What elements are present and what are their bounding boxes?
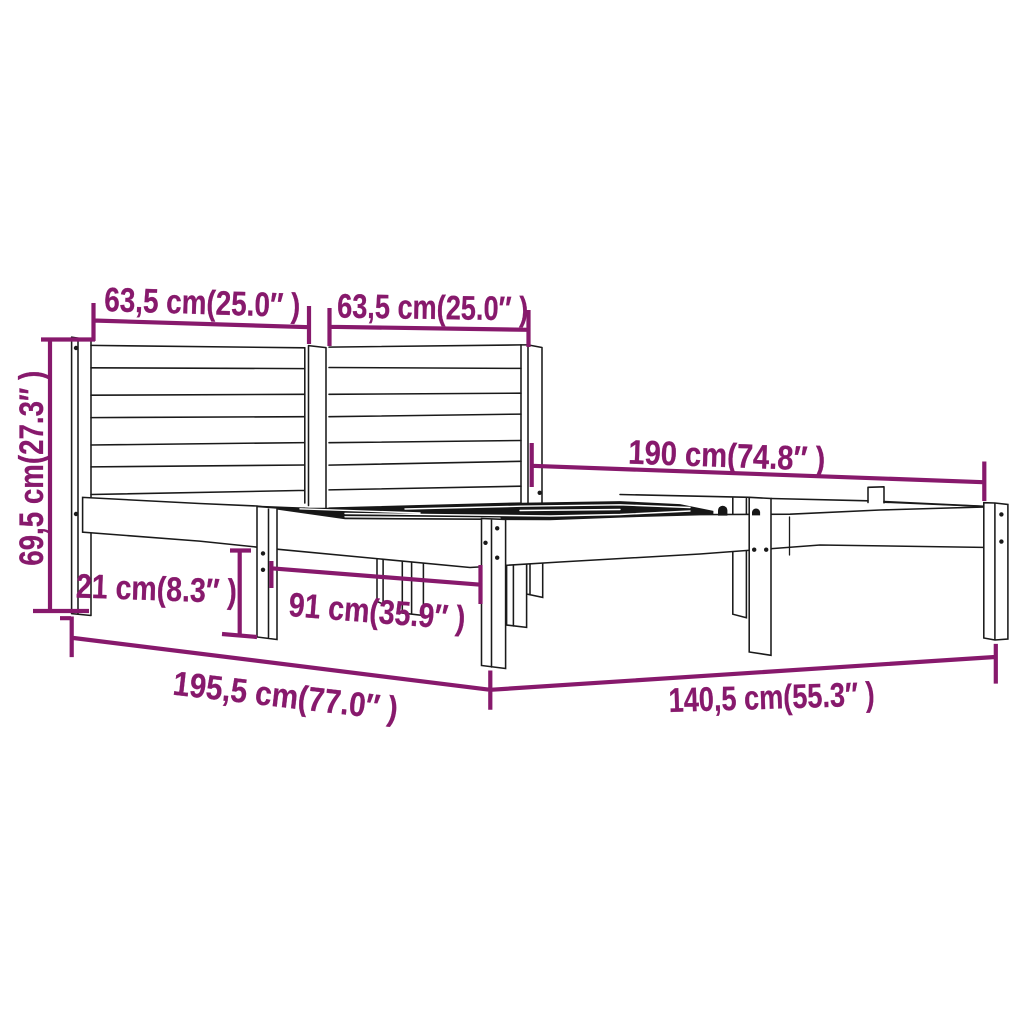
svg-text:140,5 cm(55.3″ ): 140,5 cm(55.3″ ) xyxy=(668,676,875,720)
svg-text:190 cm(74.8″ ): 190 cm(74.8″ ) xyxy=(628,434,826,479)
svg-text:63,5 cm(25.0″ ): 63,5 cm(25.0″ ) xyxy=(337,288,529,329)
svg-text:69,5 cm(27.3″ ): 69,5 cm(27.3″ ) xyxy=(13,371,51,566)
svg-text:21 cm(8.3″ ): 21 cm(8.3″ ) xyxy=(75,568,237,612)
svg-text:63,5 cm(25.0″ ): 63,5 cm(25.0″ ) xyxy=(104,281,301,325)
